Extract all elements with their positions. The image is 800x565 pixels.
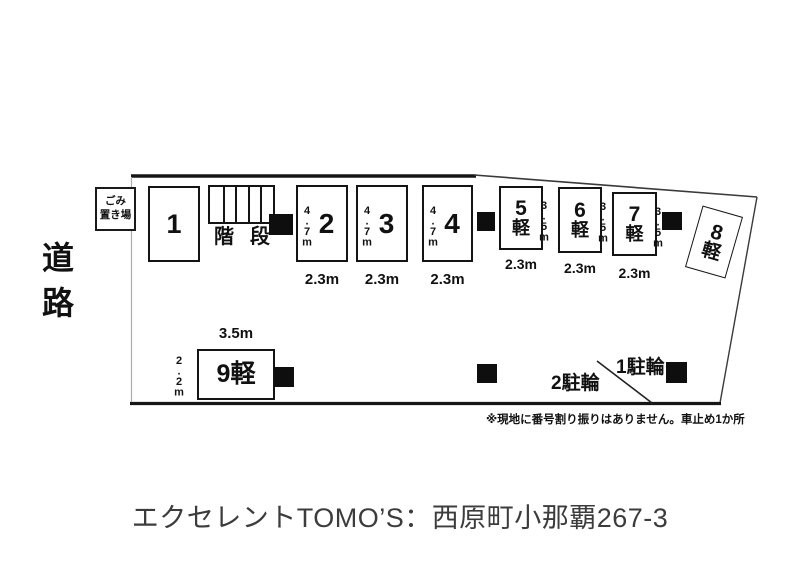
spot-kei-label: 軽 xyxy=(571,221,589,239)
parking-lot-map: 道路 ごみ 置き場 1 階段 4.7m 2 4.7m 3 4.7m 4 2.3m… xyxy=(0,0,800,565)
parking-spot-3: 4.7m 3 xyxy=(356,185,408,262)
spot-9-depth-label: 2.2m xyxy=(173,355,184,397)
spot-number: 5 xyxy=(515,198,527,219)
page-title: エクセレントTOMO’S：西原町小那覇267-3 xyxy=(0,496,800,535)
spot-7-width-label: 2.3m xyxy=(612,265,657,281)
stairs-step-line xyxy=(260,187,262,222)
block-marker xyxy=(269,214,293,235)
stairs-step-line xyxy=(235,187,237,222)
spot-6-width-label: 2.3m xyxy=(558,260,602,276)
spot-depth-label: 3.5m xyxy=(538,200,549,242)
spot-depth-label: 3.5m xyxy=(597,201,608,243)
parking-spot-5: 5 軽 3.5m xyxy=(499,186,543,250)
spot-depth-label: 4.7m xyxy=(361,205,372,247)
spot-number: 1 xyxy=(166,211,181,238)
road-label: 道路 xyxy=(40,241,72,331)
spot-number: 4 xyxy=(444,210,460,238)
spot-number: 3 xyxy=(379,210,395,238)
spot-number: 2 xyxy=(319,210,335,238)
bike-parking-1-label: 1駐輪 xyxy=(616,358,665,377)
spot-5-width-label: 2.3m xyxy=(499,256,543,272)
parking-spot-6: 6 軽 3.5m xyxy=(558,187,602,253)
spot-depth-label: 4.7m xyxy=(301,205,312,247)
spot-3-width-label: 2.3m xyxy=(356,271,408,288)
spot-4-width-label: 2.3m xyxy=(422,271,473,288)
stairs-hatch xyxy=(208,185,275,224)
spot-number: 6 xyxy=(574,200,586,221)
spot-kei-label: 軽 xyxy=(699,240,723,264)
parking-spot-9: 9軽 xyxy=(197,349,275,400)
stairs-step-line xyxy=(248,187,250,222)
parking-spot-2: 4.7m 2 xyxy=(296,185,348,262)
bike-parking-2-label: 2駐輪 xyxy=(551,374,600,393)
note-text: ※現地に番号割り振りはありません。車止め1か所 xyxy=(486,411,745,427)
spot-kei-label: 軽 xyxy=(626,225,644,243)
trash-area-label-line2: 置き場 xyxy=(100,209,132,223)
spot-number: 9軽 xyxy=(217,362,256,387)
stairs-step-line xyxy=(223,187,225,222)
spot-2-width-label: 2.3m xyxy=(296,271,348,288)
block-marker xyxy=(666,362,687,383)
block-marker xyxy=(477,212,495,231)
trash-area-label-line1: ごみ xyxy=(105,195,126,209)
trash-area: ごみ 置き場 xyxy=(95,187,136,231)
block-marker xyxy=(662,212,682,230)
spot-number: 7 xyxy=(629,204,641,225)
spot-depth-label: 4.7m xyxy=(427,205,438,247)
parking-spot-4: 4.7m 4 xyxy=(422,185,473,262)
block-marker xyxy=(477,364,497,383)
spot-kei-label: 軽 xyxy=(512,219,530,237)
block-marker xyxy=(274,367,294,387)
parking-spot-1: 1 xyxy=(148,186,200,262)
spot-9-width-label: 3.5m xyxy=(197,325,275,342)
parking-spot-7: 7 軽 3.5m xyxy=(612,192,657,256)
